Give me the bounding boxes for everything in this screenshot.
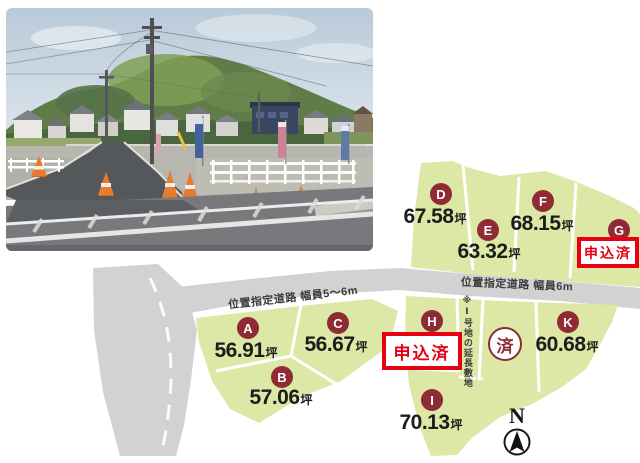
plot-size-a: 56.91坪 <box>214 339 277 363</box>
sold-mark: 済 <box>488 327 522 361</box>
plot-badge-f: F <box>532 190 554 212</box>
cloud <box>196 14 316 42</box>
plot-size-e: 63.32坪 <box>457 240 520 264</box>
plot-size-k: 60.68坪 <box>535 333 598 357</box>
plot-size-f: 68.15坪 <box>510 212 573 236</box>
compass-label: N <box>509 405 525 427</box>
flyer-canvas: 位置指定道路 幅員5〜6m 位置指定道路 幅員6m D E F G A B C … <box>0 0 640 463</box>
site-photo-illustration <box>6 8 373 251</box>
applied-box-h: 申込済 <box>382 332 462 370</box>
plot-badge-e: E <box>477 219 499 241</box>
plot-size-d: 67.58坪 <box>403 205 466 229</box>
plot-badge-a: A <box>237 317 259 339</box>
plot-badge-c: C <box>327 312 349 334</box>
site-photo <box>6 8 373 251</box>
plot-size-i: 70.13坪 <box>399 411 462 435</box>
plot-badge-h: H <box>421 310 443 332</box>
applied-box-g: 申込済 <box>577 237 639 268</box>
compass-arrow-icon <box>505 430 530 455</box>
plot-badge-i: I <box>421 389 443 411</box>
plot-size-b: 57.06坪 <box>249 386 312 410</box>
extension-note: ※Ⅰ号地の延長敷地 <box>462 296 472 392</box>
plot-badge-d: D <box>430 183 452 205</box>
plot-badge-k: K <box>557 311 579 333</box>
plot-size-c: 56.67坪 <box>304 333 367 357</box>
plot-badge-b: B <box>271 366 293 388</box>
